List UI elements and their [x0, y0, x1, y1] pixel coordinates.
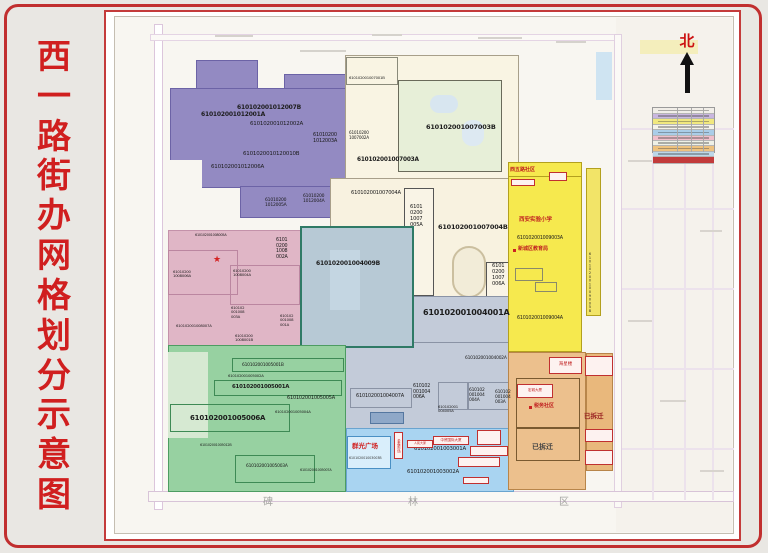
demolished-center: 已拆迁: [532, 444, 553, 451]
arrow-head-icon: [680, 52, 694, 65]
box-yellow-3: [515, 268, 543, 281]
grid-code-label: 61010200 1008006A: [173, 270, 191, 279]
zone-grid-h5: [622, 448, 734, 450]
legend-column-divider: [677, 108, 678, 152]
box-jinxin: 金鑫市场: [394, 432, 403, 459]
north-label: 北: [668, 30, 706, 51]
box-small-3: [458, 457, 500, 467]
grid-code-label: 610102001009003A: [517, 236, 563, 242]
grid-code-label: 610102001007004A: [351, 190, 401, 196]
zone-faint-street-1: [215, 35, 253, 37]
grid-code-label: 610102001007003B: [426, 124, 496, 132]
grid-code-label: 610102001007004B: [438, 224, 508, 232]
zone-road-bottom: [148, 491, 734, 502]
zone-pale-blue-strip: [596, 52, 612, 100]
grid-code-label: 610102001004007A: [356, 394, 404, 400]
grid-code-label: 610102001004001A: [423, 308, 510, 317]
district-char: 林: [408, 493, 418, 508]
zone-yellow-band-line: [508, 176, 582, 177]
grid-code-label: 610102001003002A: [407, 469, 459, 475]
box-renmin: 人民大厦: [407, 440, 433, 448]
north-arrow: 北: [668, 30, 706, 105]
box-zhongmao: 中贸国际大厦: [433, 436, 469, 445]
zone-box-1007001B: [346, 57, 398, 85]
grid-code-label: 610102001005004A: [275, 410, 311, 414]
grid-code-label: 610102001005006A: [190, 414, 265, 422]
zone-red-dot-1: [513, 249, 516, 252]
zone-grid-v2: [684, 140, 686, 500]
grid-code-label: 610102001005001B: [242, 363, 284, 368]
zone-yellow-main: [508, 162, 582, 352]
grid-code-label: 610102001004009B: [316, 260, 380, 267]
zone-grid-h2: [622, 208, 734, 210]
grid-code-label: 61010200 1008001B: [235, 334, 253, 343]
grid-code-label: 610102001004002A: [465, 356, 507, 361]
grid-code-label: 610102001009005B: [588, 252, 592, 313]
grid-code-label: 6101 0200 1008 002A: [276, 238, 288, 261]
zone-road-left: [154, 24, 163, 510]
grid-code-label: 610102001005005A: [287, 396, 335, 402]
grid-code-label: 610102001007003A: [357, 157, 419, 164]
grid-code-label: 610102 001004 006A: [413, 384, 430, 401]
legend-column-divider: [703, 108, 704, 152]
grid-code-label: 610102001007001B: [349, 76, 385, 80]
zone-grid-v1: [652, 140, 654, 500]
box-orange-2: [585, 429, 613, 442]
box-haixing: 海星楼: [549, 357, 582, 374]
zone-faint-street-5: [556, 41, 586, 43]
grid-code-label: 610102001005007A: [300, 468, 331, 472]
box-grayblue: [370, 412, 404, 424]
grid-code-label: 610102001005002A: [228, 374, 264, 378]
grid-code-label: 61010200 1012005A: [265, 198, 287, 209]
qunguang-code: 610102001003003B: [349, 457, 382, 460]
zone-faint-street-2: [300, 50, 346, 52]
zone-road-right: [614, 34, 622, 508]
legend-row: [653, 157, 714, 164]
grid-code-label: 610102001 004005A: [438, 405, 458, 414]
grid-code-label: 610102 001008 003A: [231, 306, 244, 319]
grid-code-label: 610102 001008 001A: [280, 314, 293, 327]
zone-gray-upper: [412, 296, 514, 346]
grid-code-label: 61010200 1007002A: [349, 131, 369, 141]
legend-column-divider: [691, 108, 692, 152]
box-yellow-1: [511, 179, 535, 186]
zone-faint-mark-1: [628, 160, 652, 162]
grid-code-label: 610102001009004A: [517, 316, 563, 322]
box-small-1: [477, 430, 501, 445]
zone-qunguang-box: [347, 436, 391, 469]
community-xiwulu: 西五路社区: [510, 168, 535, 173]
grid-code-label: 610102001012002A: [250, 121, 303, 127]
grid-code-label: 61010200 1012003A: [313, 133, 337, 145]
legend-table: [652, 107, 715, 153]
zone-red-dot-2: [529, 406, 532, 409]
zone-faint-mark-3: [628, 320, 652, 322]
grid-code-label: 610102 001004 004A: [469, 388, 485, 404]
zone-blob-1: [430, 95, 458, 113]
grid-code-label: 610102001005001A: [232, 384, 289, 390]
box-yellow-4: [535, 282, 557, 292]
box-small-4: [463, 477, 489, 484]
grid-code-label: 61010200 1008004A: [233, 269, 251, 278]
grid-code-label: 610102 001004 003A: [495, 390, 511, 406]
zone-faint-mark-2: [700, 230, 722, 232]
zone-teal-inner: [330, 250, 360, 310]
zone-grid-v3: [712, 140, 714, 500]
grid-code-label: 610102001005012B: [200, 443, 232, 447]
star-marker: ★: [213, 256, 221, 265]
district-char: 碑: [263, 493, 273, 508]
zone-stadium-ring: [452, 246, 486, 298]
qunguang-title: 群光广场: [352, 443, 378, 450]
zone-purple-notch: [170, 160, 202, 188]
grid-code-label: 6101 0200 1007 005A: [410, 204, 423, 229]
school-shiyan: 西安实验小学: [519, 218, 552, 224]
grid-code-label: 610102001008007A: [176, 324, 212, 328]
box-small-2: [470, 446, 508, 456]
arrow-stem-icon: [685, 65, 690, 93]
box-orange-3: [585, 450, 613, 465]
district-char: 区: [559, 493, 569, 508]
zone-faint-mark-4: [660, 400, 686, 402]
box-orange-1: [585, 356, 613, 376]
zone-grid-h3: [622, 288, 734, 290]
schematic-page: 西一路街办网格划分示意图 610102001012007B61010200101…: [0, 0, 768, 553]
grid-code-label: 61010200 1012004A: [303, 194, 325, 205]
grid-code-label: 610102001008005A: [195, 233, 226, 237]
grid-code-label: 610102001005003A: [246, 464, 288, 469]
grid-code-label: 610102001012001A: [201, 111, 265, 118]
zone-faint-street-3: [372, 34, 402, 36]
grid-code-label: 610102001012006A: [211, 164, 264, 170]
bureau-jiaoyu: 新城区教育局: [518, 247, 548, 252]
demolished-right: 已拆迁: [584, 413, 604, 420]
map-canvas: 610102001012007B610102001012001A61010200…: [0, 0, 768, 553]
box-hongcheng: 宏城大厦: [517, 384, 553, 398]
community-shuiwu: 税务社区: [534, 404, 554, 409]
grid-code-label: 6101 0200 1007 006A: [492, 263, 505, 288]
box-yellow-2: [549, 172, 567, 181]
zone-faint-mark-5: [700, 470, 724, 472]
zone-faint-street-4: [478, 37, 522, 39]
grid-code-label: 6101020010120010B: [243, 151, 299, 157]
zone-grid-h4: [622, 368, 734, 370]
